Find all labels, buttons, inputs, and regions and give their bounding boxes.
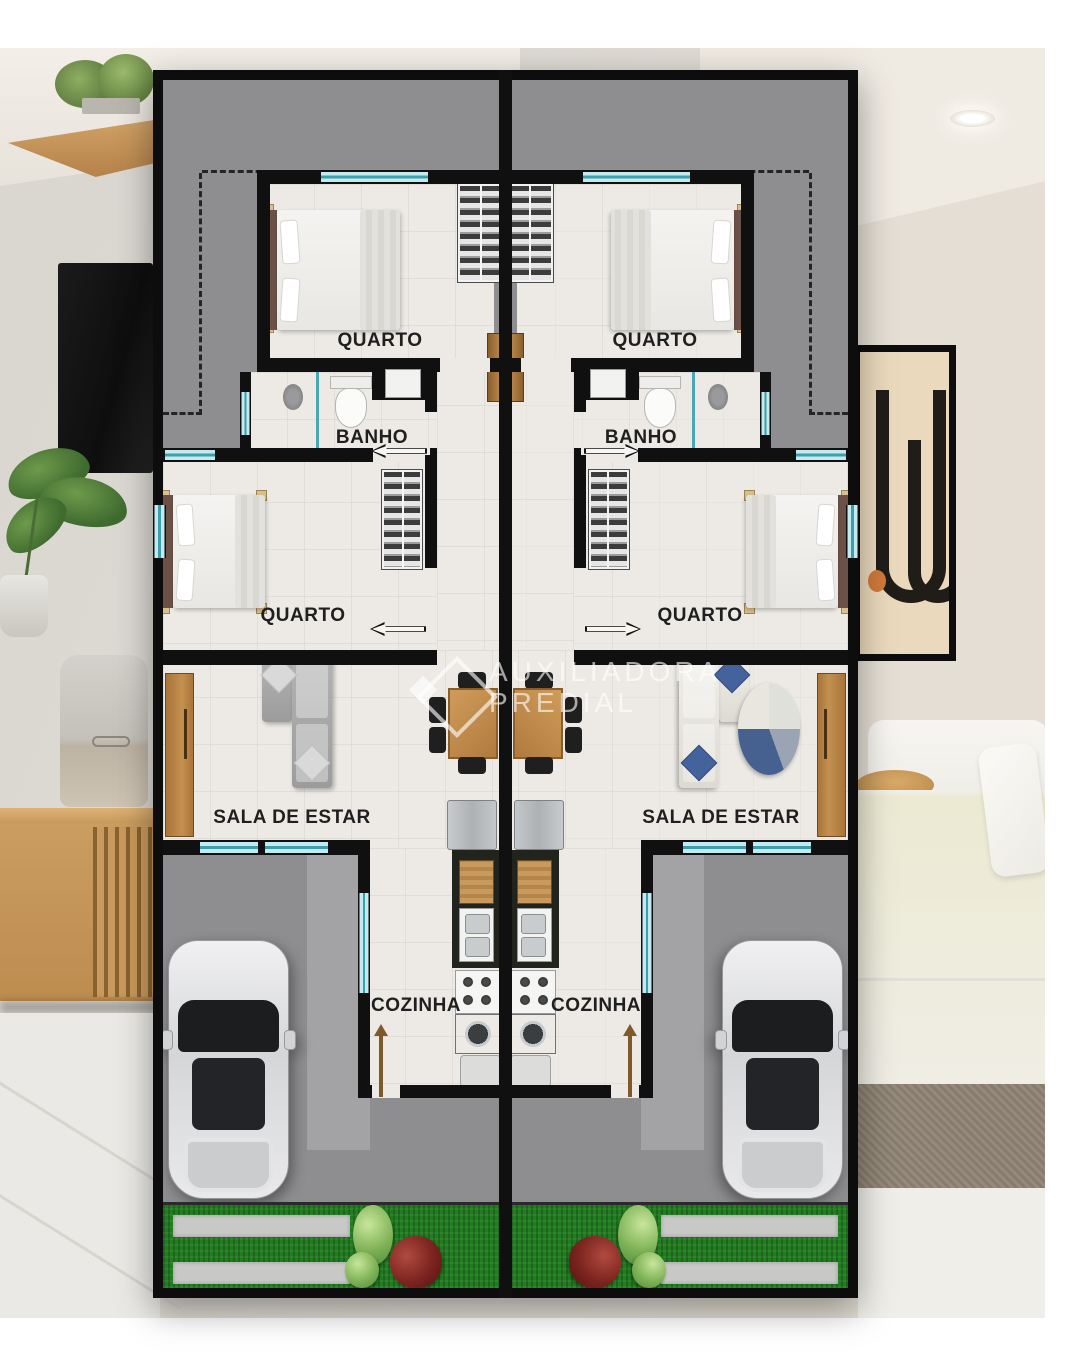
door-arrow-head [623,1024,637,1036]
round-rug [738,683,800,775]
vanity-sink [385,369,421,398]
dining-chair [525,757,553,774]
room-label-cozinha: COZINHA [371,995,461,1017]
floor-right [858,1188,1045,1318]
room-label-cozinha: COZINHA [551,995,641,1017]
door-opening [372,1085,400,1098]
window [760,392,771,435]
bed-blanket [360,210,400,330]
art-mat [860,352,949,654]
stove [510,970,556,1014]
art-orange-dot [868,570,886,592]
bed-pillow [176,503,196,546]
washing-machine [455,1014,501,1054]
tv-console [0,823,158,1001]
room-label-quarto: QUARTO [261,605,346,627]
sideboard-handle [824,709,827,759]
sofa-seam [858,978,1045,981]
watermark: AUXILIADORA PREDIAL [489,656,721,718]
paver-strip [661,1262,838,1284]
stove [455,970,501,1014]
tv [58,263,153,473]
flower-bush [390,1236,442,1288]
toilet [335,388,367,428]
bed-pillow [176,558,196,601]
appliance [510,1055,551,1087]
setback-dashed-line [163,412,202,415]
sideboard [817,673,846,837]
window [153,505,166,558]
door-opening [521,358,571,372]
bed-blanket [611,210,651,330]
bed-blanket [235,495,265,608]
shower-head [708,384,728,410]
speaker-vase [60,655,148,807]
shower-glass [692,372,695,455]
dining-chair [429,727,446,753]
wall-segment [163,650,437,665]
console-shadow [0,1001,158,1013]
window [265,840,328,855]
window [583,170,690,184]
shrub [632,1252,666,1288]
screenshot-canvas: QUARTO QUARTO BANHO BANHO QUARTO QUARTO … [0,0,1092,1366]
room-label-banho: BANHO [336,427,408,449]
vanity-sink [590,369,626,398]
door-opening [611,1085,639,1098]
wall-segment [425,372,437,412]
setback-dashed-line [809,173,812,415]
room-label-quarto: QUARTO [658,605,743,627]
shrub [345,1252,379,1288]
shower-head [283,384,303,410]
car [716,938,849,1203]
rug [858,1084,1045,1188]
planter-box [82,98,140,114]
window [165,448,215,462]
watermark-line2: PREDIAL [489,687,721,718]
art-arc [908,440,949,603]
bed-pillow [279,219,300,264]
paver-strip [173,1215,350,1237]
window [358,893,370,993]
room-label-sala: SALA DE ESTAR [642,807,799,829]
window [641,893,653,993]
cutting-board [517,860,552,904]
refrigerator [514,800,564,850]
car [162,938,295,1203]
setback-dashed-line [809,412,848,415]
bed-pillow [816,503,836,546]
bed-pillow [710,219,731,264]
window [753,840,811,855]
wall-segment [741,170,754,358]
floor-hallway [512,358,574,665]
door-swing-arrow [370,622,426,636]
dining-chair [458,757,486,774]
door-arrow [628,1035,632,1097]
bed-pillow [279,277,300,322]
plant-pot [0,575,48,637]
bed-pillow [816,558,836,601]
sideboard [165,673,194,837]
framed-art [853,345,956,661]
dining-chair [565,727,582,753]
door-swing-arrow [585,622,641,636]
room-label-quarto: QUARTO [613,330,698,352]
window [321,170,428,184]
door-opening [440,358,490,372]
kitchen-sink [459,908,494,962]
appliance [460,1055,501,1087]
toilet [644,388,676,428]
window [240,392,251,435]
room-label-sala: SALA DE ESTAR [213,807,370,829]
window [683,840,746,855]
cutting-board [459,860,494,904]
door-arrow-head [374,1024,388,1036]
watermark-line1: AUXILIADORA [489,656,721,687]
console-slat-door [93,827,155,997]
wall-segment [574,455,586,568]
refrigerator [447,800,497,850]
console-top [0,808,158,823]
wall-segment [257,170,270,358]
wardrobe [589,470,629,569]
kitchen-sink [517,908,552,962]
wall-segment [574,372,586,412]
wardrobe [382,470,422,569]
wardrobe [458,184,501,282]
bed-pillow [710,277,731,322]
room-label-quarto: QUARTO [338,330,423,352]
window [846,505,859,558]
window [200,840,258,855]
recessed-light [950,110,995,127]
room-label-banho: BANHO [605,427,677,449]
shower-glass [316,372,319,455]
speaker-slot [92,736,130,747]
flower-bush [569,1236,621,1288]
paver-strip [661,1215,838,1237]
washing-machine [510,1014,556,1054]
bed-blanket [746,495,776,608]
setback-dashed-line [199,173,202,415]
floor-hallway [437,358,499,665]
door-arrow [379,1035,383,1097]
sideboard-handle [184,709,187,759]
wardrobe [510,184,553,282]
paver-strip [173,1262,350,1284]
window [796,448,846,462]
wall-segment [425,455,437,568]
